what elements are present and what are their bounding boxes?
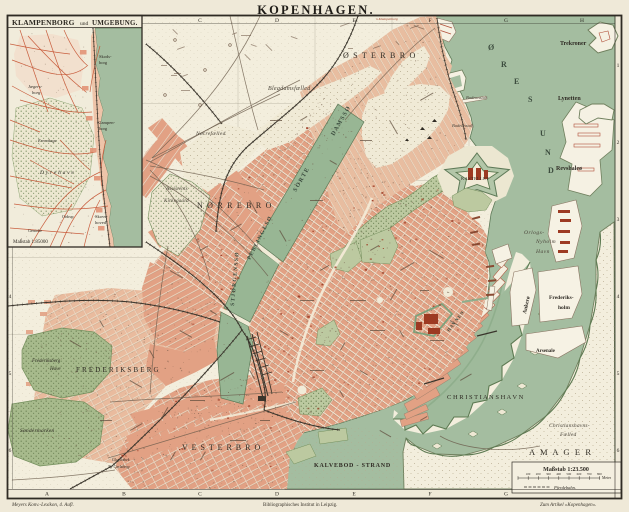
svg-text:Søndermarken: Søndermarken: [20, 428, 55, 434]
svg-text:Trekroner: Trekroner: [560, 41, 587, 47]
svg-text:R: R: [501, 60, 507, 69]
svg-text:Blegdamsfælled: Blegdamsfælled: [268, 85, 311, 92]
svg-text:UMGEBUNG.: UMGEBUNG.: [92, 19, 138, 27]
svg-text:KLAMPENBORG: KLAMPENBORG: [12, 18, 75, 27]
svg-text:Assistents: Assistents: [165, 187, 188, 192]
svg-text:KALVEBOD - STRAND: KALVEBOD - STRAND: [314, 463, 391, 469]
svg-text:D: D: [548, 166, 554, 175]
svg-text:300: 300: [546, 472, 551, 476]
svg-text:700: 700: [587, 472, 592, 476]
svg-text:D y r e h a v e: D y r e h a v e: [39, 170, 74, 176]
svg-text:F: F: [428, 492, 431, 498]
svg-text:V E S T E R B R O: V E S T E R B R O: [182, 443, 261, 452]
svg-text:Arsenale: Arsenale: [536, 349, 556, 354]
svg-text:A M A G E R: A M A G E R: [529, 447, 593, 457]
svg-text:Orlogs-: Orlogs-: [524, 230, 545, 236]
svg-text:N Ø R R E B R O: N Ø R R E B R O: [197, 201, 273, 210]
svg-text:KASTELLET: KASTELLET: [461, 176, 489, 181]
svg-text:100: 100: [526, 472, 531, 476]
svg-text:Gentofte: Gentofte: [28, 228, 42, 233]
svg-text:Have: Have: [49, 367, 61, 372]
svg-text:Meter: Meter: [602, 476, 612, 480]
svg-text:600: 600: [577, 472, 582, 476]
svg-text:Meyers Konv.-Lexikon, 4. Aufl.: Meyers Konv.-Lexikon, 4. Aufl.: [11, 503, 74, 508]
svg-text:6: 6: [9, 448, 12, 454]
svg-text:Ø S T E R B R O: Ø S T E R B R O: [343, 51, 417, 60]
svg-text:borg: borg: [99, 60, 108, 65]
svg-text:Maßstab 1:85000: Maßstab 1:85000: [13, 240, 48, 245]
svg-text:5: 5: [617, 371, 620, 377]
svg-text:U: U: [540, 129, 546, 138]
svg-text:C: C: [198, 492, 202, 498]
svg-text:KOPENHAGEN.: KOPENHAGEN.: [257, 3, 375, 17]
svg-text:Havn: Havn: [535, 249, 550, 255]
svg-text:D: D: [275, 492, 279, 498]
svg-text:Revshaleø: Revshaleø: [556, 166, 582, 172]
svg-text:Badeanstalt: Badeanstalt: [452, 123, 474, 128]
svg-text:N: N: [545, 148, 551, 157]
svg-text:3: 3: [617, 217, 620, 223]
svg-text:4: 4: [9, 294, 12, 300]
svg-text:borg: borg: [99, 126, 108, 131]
svg-text:Nyholm: Nyholm: [535, 239, 556, 245]
svg-text:Glyptothek: Glyptothek: [112, 457, 130, 462]
svg-text:Frederiksberg: Frederiksberg: [31, 359, 61, 364]
svg-text:200: 200: [536, 472, 541, 476]
svg-text:6: 6: [617, 448, 620, 454]
svg-text:C: C: [198, 18, 202, 24]
svg-text:F R E D E R I K S B E R G: F R E D E R I K S B E R G: [76, 366, 159, 374]
svg-text:G: G: [504, 18, 508, 24]
svg-text:5: 5: [9, 371, 12, 377]
svg-text:Klampen-: Klampen-: [97, 120, 115, 125]
svg-text:B: B: [122, 492, 126, 498]
svg-text:C H R I S T I A N S H A V N: C H R I S T I A N S H A V N: [447, 394, 524, 401]
svg-text:S: S: [528, 95, 533, 104]
svg-text:F: F: [428, 18, 431, 24]
svg-text:Lynetten: Lynetten: [558, 96, 581, 102]
svg-text:Fælled: Fælled: [559, 432, 577, 438]
svg-text:Kirkegaard: Kirkegaard: [163, 199, 189, 204]
svg-text:Christianshavns-: Christianshavns-: [549, 423, 590, 429]
svg-text:Skods-: Skods-: [99, 54, 112, 59]
svg-text:Ny Carlsberg: Ny Carlsberg: [107, 464, 130, 469]
svg-text:Eremitage: Eremitage: [37, 138, 57, 143]
svg-text:Skovs-: Skovs-: [95, 214, 108, 219]
svg-text:Bibliographisches Institut in: Bibliographisches Institut in Leipzig.: [263, 503, 337, 508]
svg-text:G: G: [504, 492, 508, 498]
svg-text:hoved: hoved: [95, 220, 107, 225]
svg-text:Badeanstalt: Badeanstalt: [466, 95, 488, 100]
svg-text:holm: holm: [558, 305, 570, 311]
svg-text:borg: borg: [32, 90, 41, 95]
svg-text:Ø: Ø: [488, 43, 494, 52]
svg-text:H: H: [580, 18, 584, 24]
svg-text:E: E: [514, 77, 519, 86]
svg-text:4: 4: [617, 294, 620, 300]
svg-text:n.Klampenborg: n.Klampenborg: [376, 17, 398, 21]
svg-text:Nørrefælled: Nørrefælled: [195, 130, 226, 137]
svg-text:Jægers-: Jægers-: [28, 84, 43, 89]
svg-text:Ordrup: Ordrup: [62, 214, 74, 219]
svg-text:1: 1: [617, 63, 620, 69]
svg-text:und: und: [80, 21, 89, 27]
svg-text:400: 400: [556, 472, 561, 476]
svg-text:Frederiks-: Frederiks-: [549, 295, 574, 301]
svg-text:500: 500: [566, 472, 571, 476]
svg-text:2: 2: [617, 140, 620, 146]
svg-text:A: A: [45, 492, 49, 498]
svg-text:D: D: [275, 18, 279, 24]
svg-text:Zum Artikel »Kopenhagen«.: Zum Artikel »Kopenhagen«.: [540, 503, 596, 508]
